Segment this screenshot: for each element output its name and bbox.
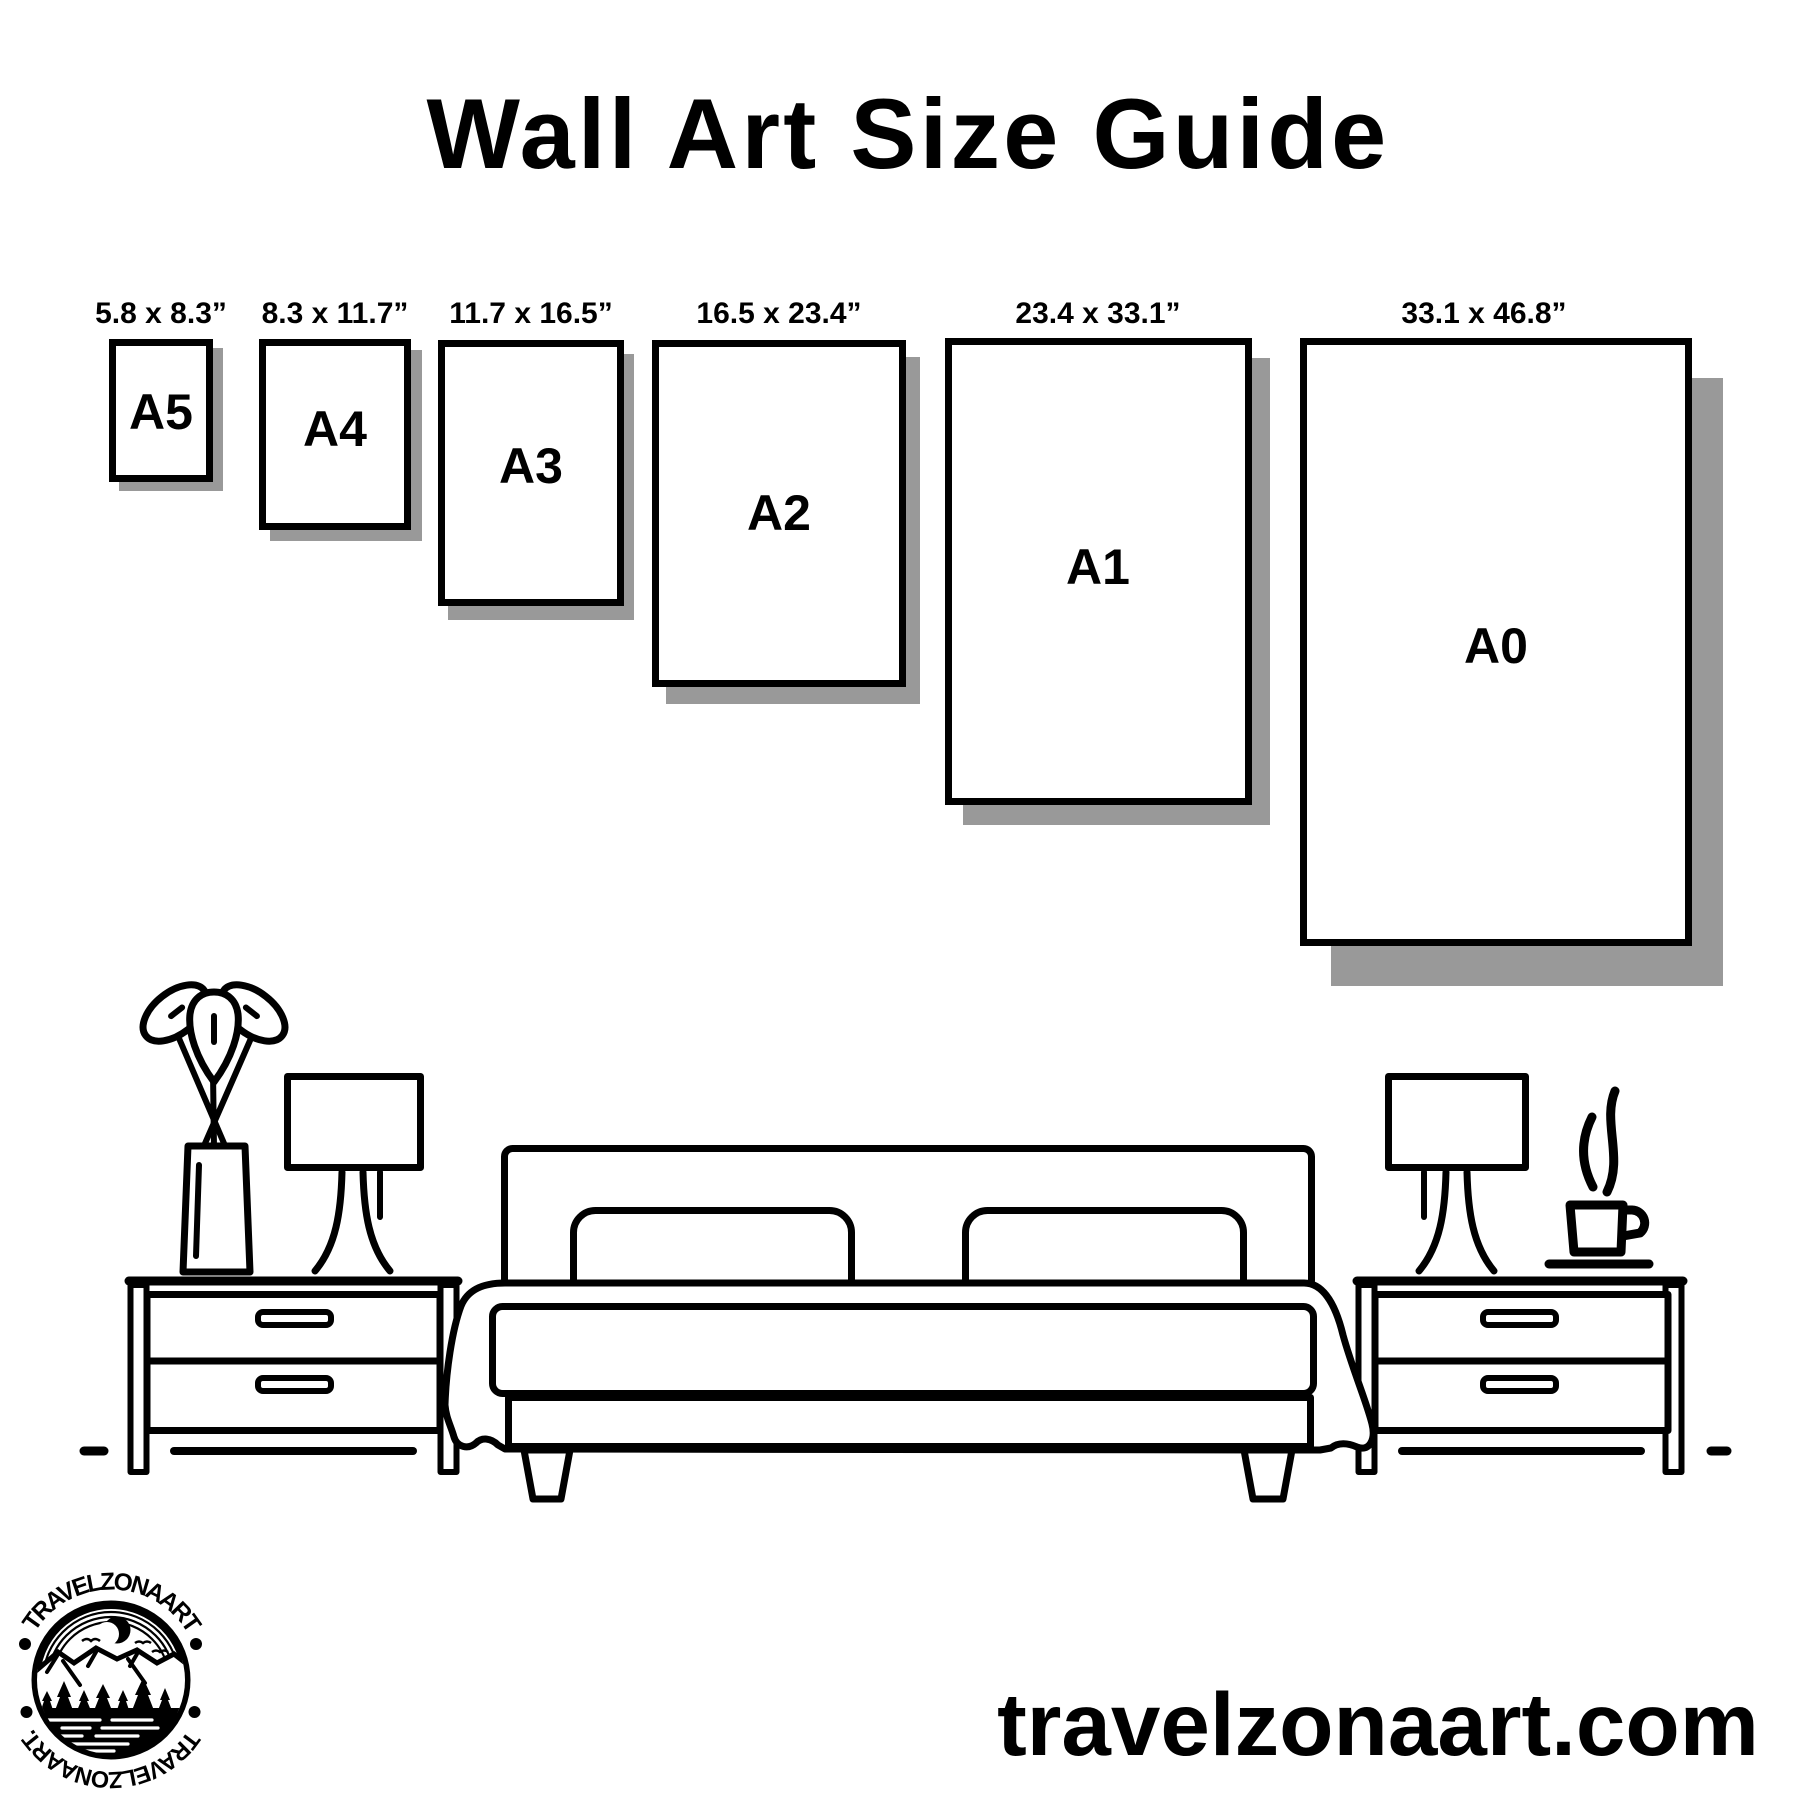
svg-text:8.3 x 11.7”: 8.3 x 11.7”: [262, 297, 409, 330]
svg-text:A1: A1: [1066, 539, 1130, 595]
svg-text:A2: A2: [747, 485, 811, 541]
svg-text:5.8 x 8.3”: 5.8 x 8.3”: [95, 297, 227, 330]
svg-text:A3: A3: [499, 438, 563, 494]
svg-text:travelzonaart.com: travelzonaart.com: [997, 1674, 1759, 1774]
svg-text:11.7 x 16.5”: 11.7 x 16.5”: [449, 297, 612, 330]
svg-text:23.4 x 33.1”: 23.4 x 33.1”: [1015, 297, 1180, 330]
svg-text:A0: A0: [1464, 618, 1528, 674]
svg-text:Wall Art Size Guide: Wall Art Size Guide: [427, 78, 1390, 189]
svg-text:33.1 x 46.8”: 33.1 x 46.8”: [1401, 297, 1566, 330]
svg-text:A4: A4: [303, 401, 367, 457]
svg-text:A5: A5: [129, 384, 193, 440]
svg-text:16.5 x 23.4”: 16.5 x 23.4”: [696, 297, 861, 330]
